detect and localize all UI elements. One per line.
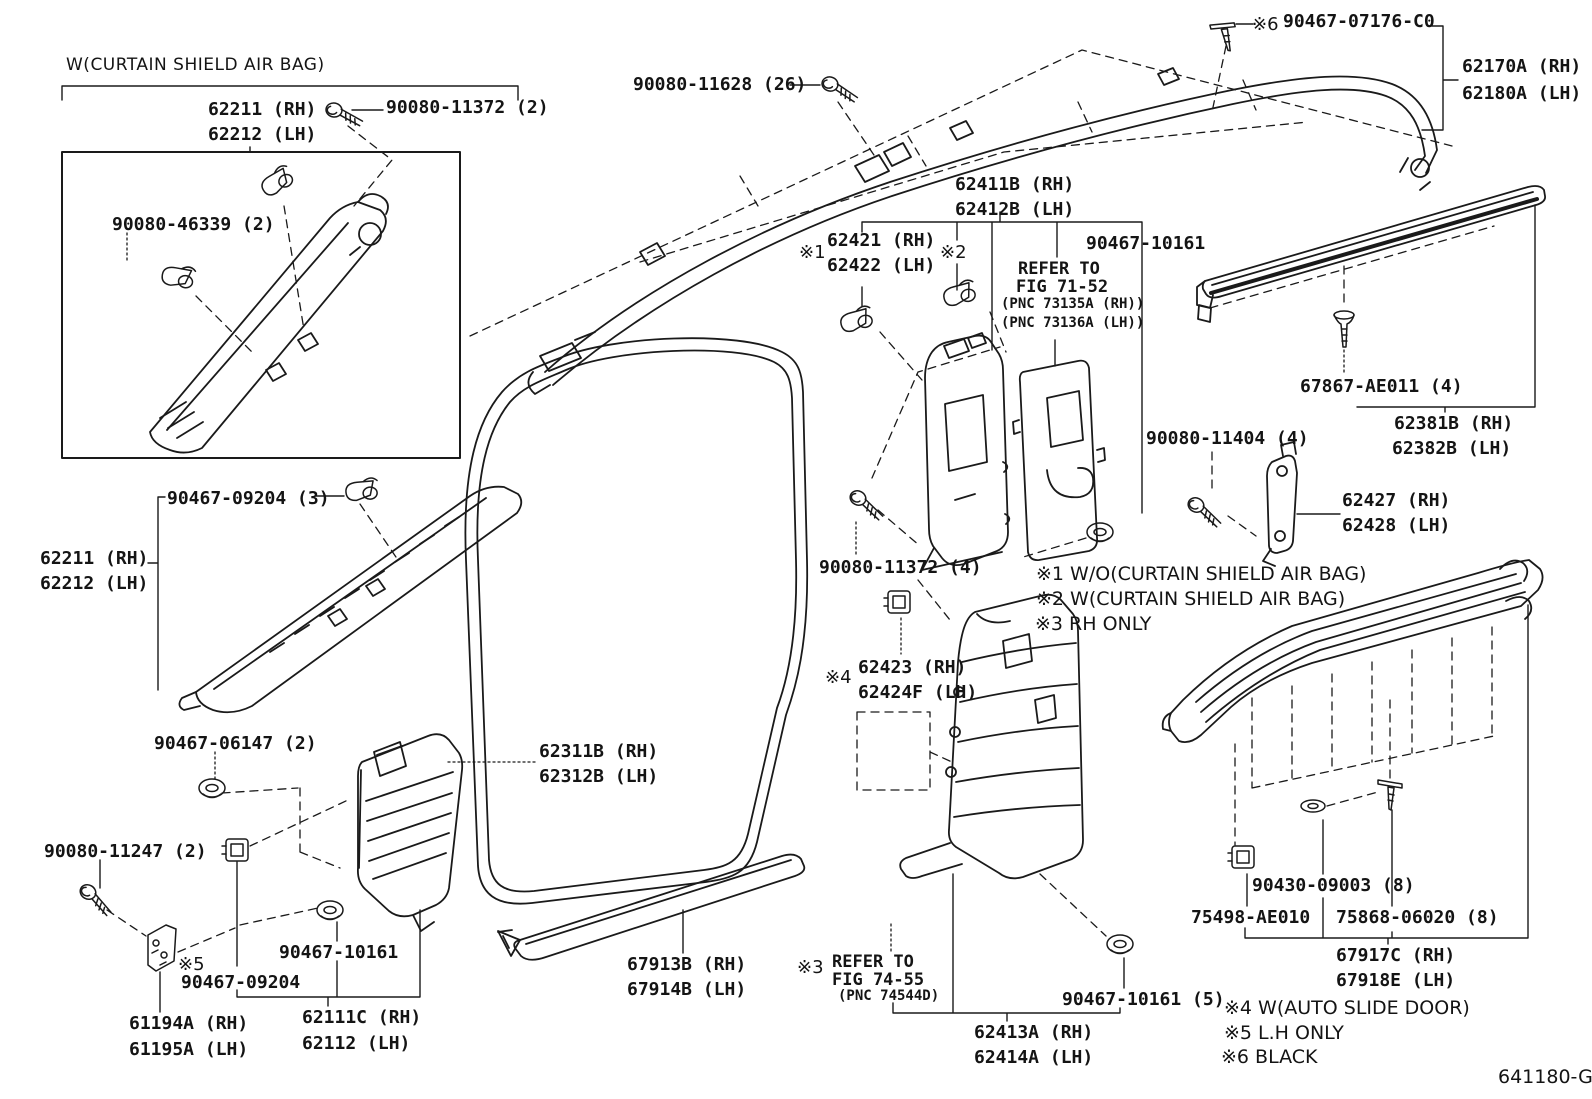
mark-3-refer: ※3 — [797, 958, 824, 977]
legend-note-5: ※5 L.H ONLY — [1224, 1023, 1344, 1043]
label-90080-46339-2[interactable]: 90080-46339 (2) — [112, 215, 275, 234]
label-62112-lh[interactable]: 62112 (LH) — [302, 1034, 410, 1053]
refer-to-fig-74-55-line1: REFER TO — [832, 953, 914, 971]
label-62428-lh[interactable]: 62428 (LH) — [1342, 516, 1450, 535]
mark-1-62421: ※1 — [799, 243, 826, 262]
label-90080-11628-26[interactable]: 90080-11628 (26) — [633, 75, 806, 94]
legend-note-4: ※4 W(AUTO SLIDE DOOR) — [1224, 998, 1470, 1018]
labels-layer: W(CURTAIN SHIELD AIR BAG)62211 (RH)62212… — [0, 0, 1592, 1099]
label-90467-06147-2[interactable]: 90467-06147 (2) — [154, 734, 317, 753]
legend-note-3: ※3 RH ONLY — [1035, 614, 1151, 634]
refer-to-fig-71-52-line2: FIG 71-52 — [1016, 278, 1108, 296]
pnc-74544d: (PNC 74544D) — [838, 989, 939, 1004]
label-62413a-rh[interactable]: 62413A (RH) — [974, 1023, 1093, 1042]
label-75498-ae010[interactable]: 75498-AE010 — [1191, 908, 1310, 927]
label-90467-07176-c0[interactable]: 90467-07176-C0 — [1283, 12, 1435, 31]
label-62424f-lh[interactable]: 62424F (LH) — [858, 683, 977, 702]
label-62414a-lh[interactable]: 62414A (LH) — [974, 1048, 1093, 1067]
pnc-73135a-rh: (PNC 73135A (RH)) — [1001, 297, 1144, 312]
label-90467-10161-lower[interactable]: 90467-10161 — [279, 943, 398, 962]
label-62412b-lh[interactable]: 62412B (LH) — [955, 200, 1074, 219]
mark-4-62423: ※4 — [825, 668, 852, 687]
label-62382b-lh[interactable]: 62382B (LH) — [1392, 439, 1511, 458]
label-90080-11372-2[interactable]: 90080-11372 (2) — [386, 98, 549, 117]
legend-note-1: ※1 W/O(CURTAIN SHIELD AIR BAG) — [1036, 564, 1366, 584]
label-90080-11247-2[interactable]: 90080-11247 (2) — [44, 842, 207, 861]
label-62211-rh-mid[interactable]: 62211 (RH) — [40, 549, 148, 568]
label-90467-10161-5[interactable]: 90467-10161 (5) — [1062, 990, 1225, 1009]
label-67867-ae011-4[interactable]: 67867-AE011 (4) — [1300, 377, 1463, 396]
label-90080-11404-4[interactable]: 90080-11404 (4) — [1146, 429, 1309, 448]
label-62381b-rh[interactable]: 62381B (RH) — [1394, 414, 1513, 433]
label-75868-06020-8[interactable]: 75868-06020 (8) — [1336, 908, 1499, 927]
drawing-code: 641180-G — [1498, 1066, 1592, 1088]
refer-to-fig-71-52-line1: REFER TO — [1018, 260, 1100, 278]
label-67918e-lh[interactable]: 67918E (LH) — [1336, 971, 1455, 990]
label-62111c-rh[interactable]: 62111C (RH) — [302, 1008, 421, 1027]
label-62422-lh[interactable]: 62422 (LH) — [827, 256, 935, 275]
label-67917c-rh[interactable]: 67917C (RH) — [1336, 946, 1455, 965]
label-90430-09003-8[interactable]: 90430-09003 (8) — [1252, 876, 1415, 895]
label-61194a-rh[interactable]: 61194A (RH) — [129, 1014, 248, 1033]
mark-2-62421: ※2 — [940, 243, 967, 262]
parts-diagram-canvas: W(CURTAIN SHIELD AIR BAG)62211 (RH)62212… — [0, 0, 1592, 1099]
label-62211-rh-top[interactable]: 62211 (RH) — [208, 100, 316, 119]
label-62212-lh-top[interactable]: 62212 (LH) — [208, 125, 316, 144]
label-62421-rh[interactable]: 62421 (RH) — [827, 231, 935, 250]
label-90467-09204[interactable]: 90467-09204 — [181, 973, 300, 992]
label-62180a-lh[interactable]: 62180A (LH) — [1462, 84, 1581, 103]
section-note-curtain-airbag: W(CURTAIN SHIELD AIR BAG) — [66, 55, 325, 75]
label-62311b-rh[interactable]: 62311B (RH) — [539, 742, 658, 761]
label-62427-rh[interactable]: 62427 (RH) — [1342, 491, 1450, 510]
mark-6-90467: ※6 — [1252, 15, 1279, 34]
label-90467-10161-top[interactable]: 90467-10161 — [1086, 234, 1205, 253]
legend-note-6: ※6 BLACK — [1221, 1047, 1318, 1067]
label-62423-rh[interactable]: 62423 (RH) — [858, 658, 966, 677]
label-62170a-rh[interactable]: 62170A (RH) — [1462, 57, 1581, 76]
label-67913b-rh[interactable]: 67913B (RH) — [627, 955, 746, 974]
label-62411b-rh[interactable]: 62411B (RH) — [955, 175, 1074, 194]
label-67914b-lh[interactable]: 67914B (LH) — [627, 980, 746, 999]
refer-to-fig-74-55-line2: FIG 74-55 — [832, 971, 924, 989]
pnc-73136a-lh: (PNC 73136A (LH)) — [1001, 316, 1144, 331]
label-61195a-lh[interactable]: 61195A (LH) — [129, 1040, 248, 1059]
label-62212-lh-mid[interactable]: 62212 (LH) — [40, 574, 148, 593]
label-90467-09204-3[interactable]: 90467-09204 (3) — [167, 489, 330, 508]
label-62312b-lh[interactable]: 62312B (LH) — [539, 767, 658, 786]
legend-note-2: ※2 W(CURTAIN SHIELD AIR BAG) — [1036, 589, 1345, 609]
label-90080-11372-4[interactable]: 90080-11372 (4) — [819, 558, 982, 577]
